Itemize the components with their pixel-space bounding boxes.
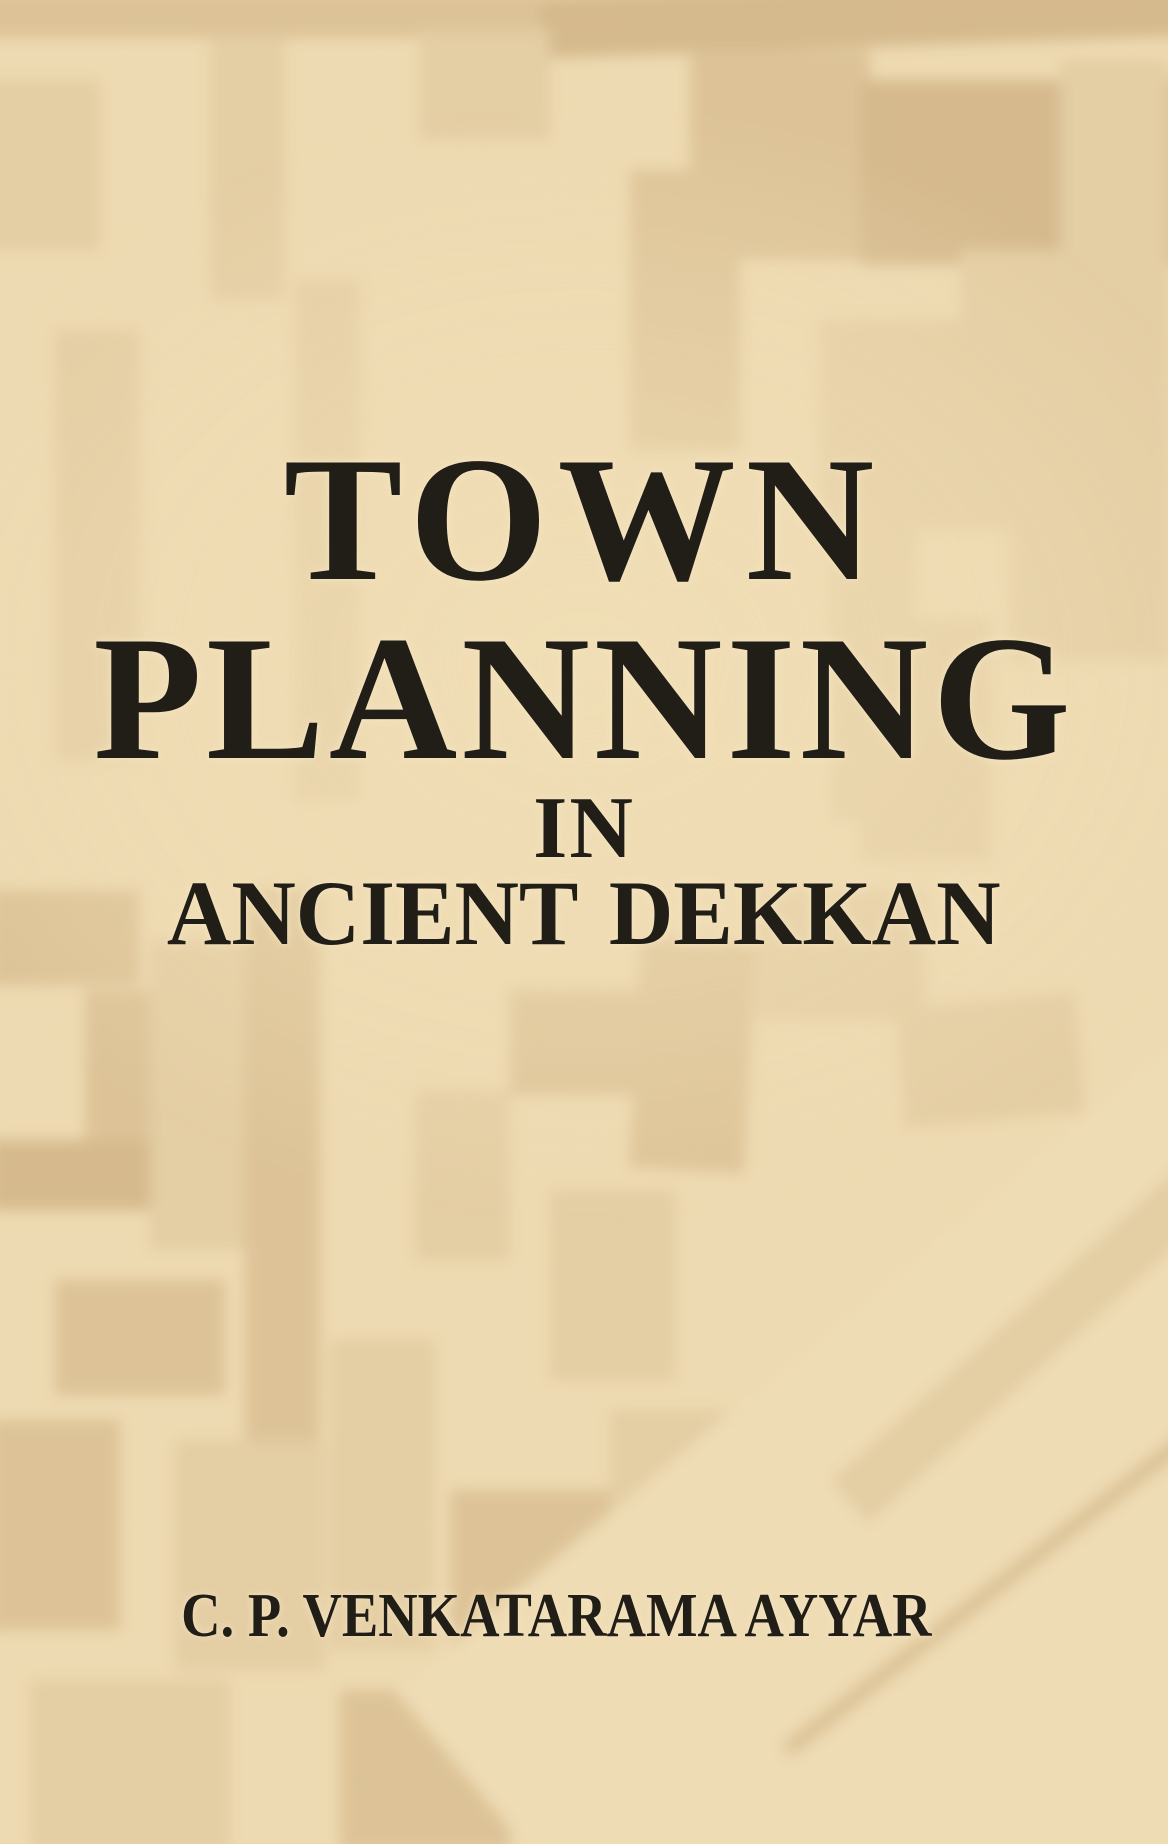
book-cover: TOWN PLANNING IN ANCIENT DEKKAN C. P. VE… bbox=[0, 0, 1168, 1844]
subtitle-line-in: IN bbox=[0, 785, 1168, 873]
cover-text: TOWN PLANNING IN ANCIENT DEKKAN C. P. VE… bbox=[0, 0, 1168, 1844]
author-line: C. P. VENKATARAMA AYYAR bbox=[0, 1585, 1168, 1647]
title-line-2: PLANNING bbox=[0, 609, 1168, 787]
subtitle-text: ANCIENT DEKKAN bbox=[167, 867, 1001, 959]
title-line-1: TOWN bbox=[0, 430, 1168, 608]
author-name: C. P. VENKATARAMA AYYAR bbox=[181, 1585, 931, 1647]
subtitle-line-ancient-dekkan: ANCIENT DEKKAN bbox=[0, 867, 1168, 959]
